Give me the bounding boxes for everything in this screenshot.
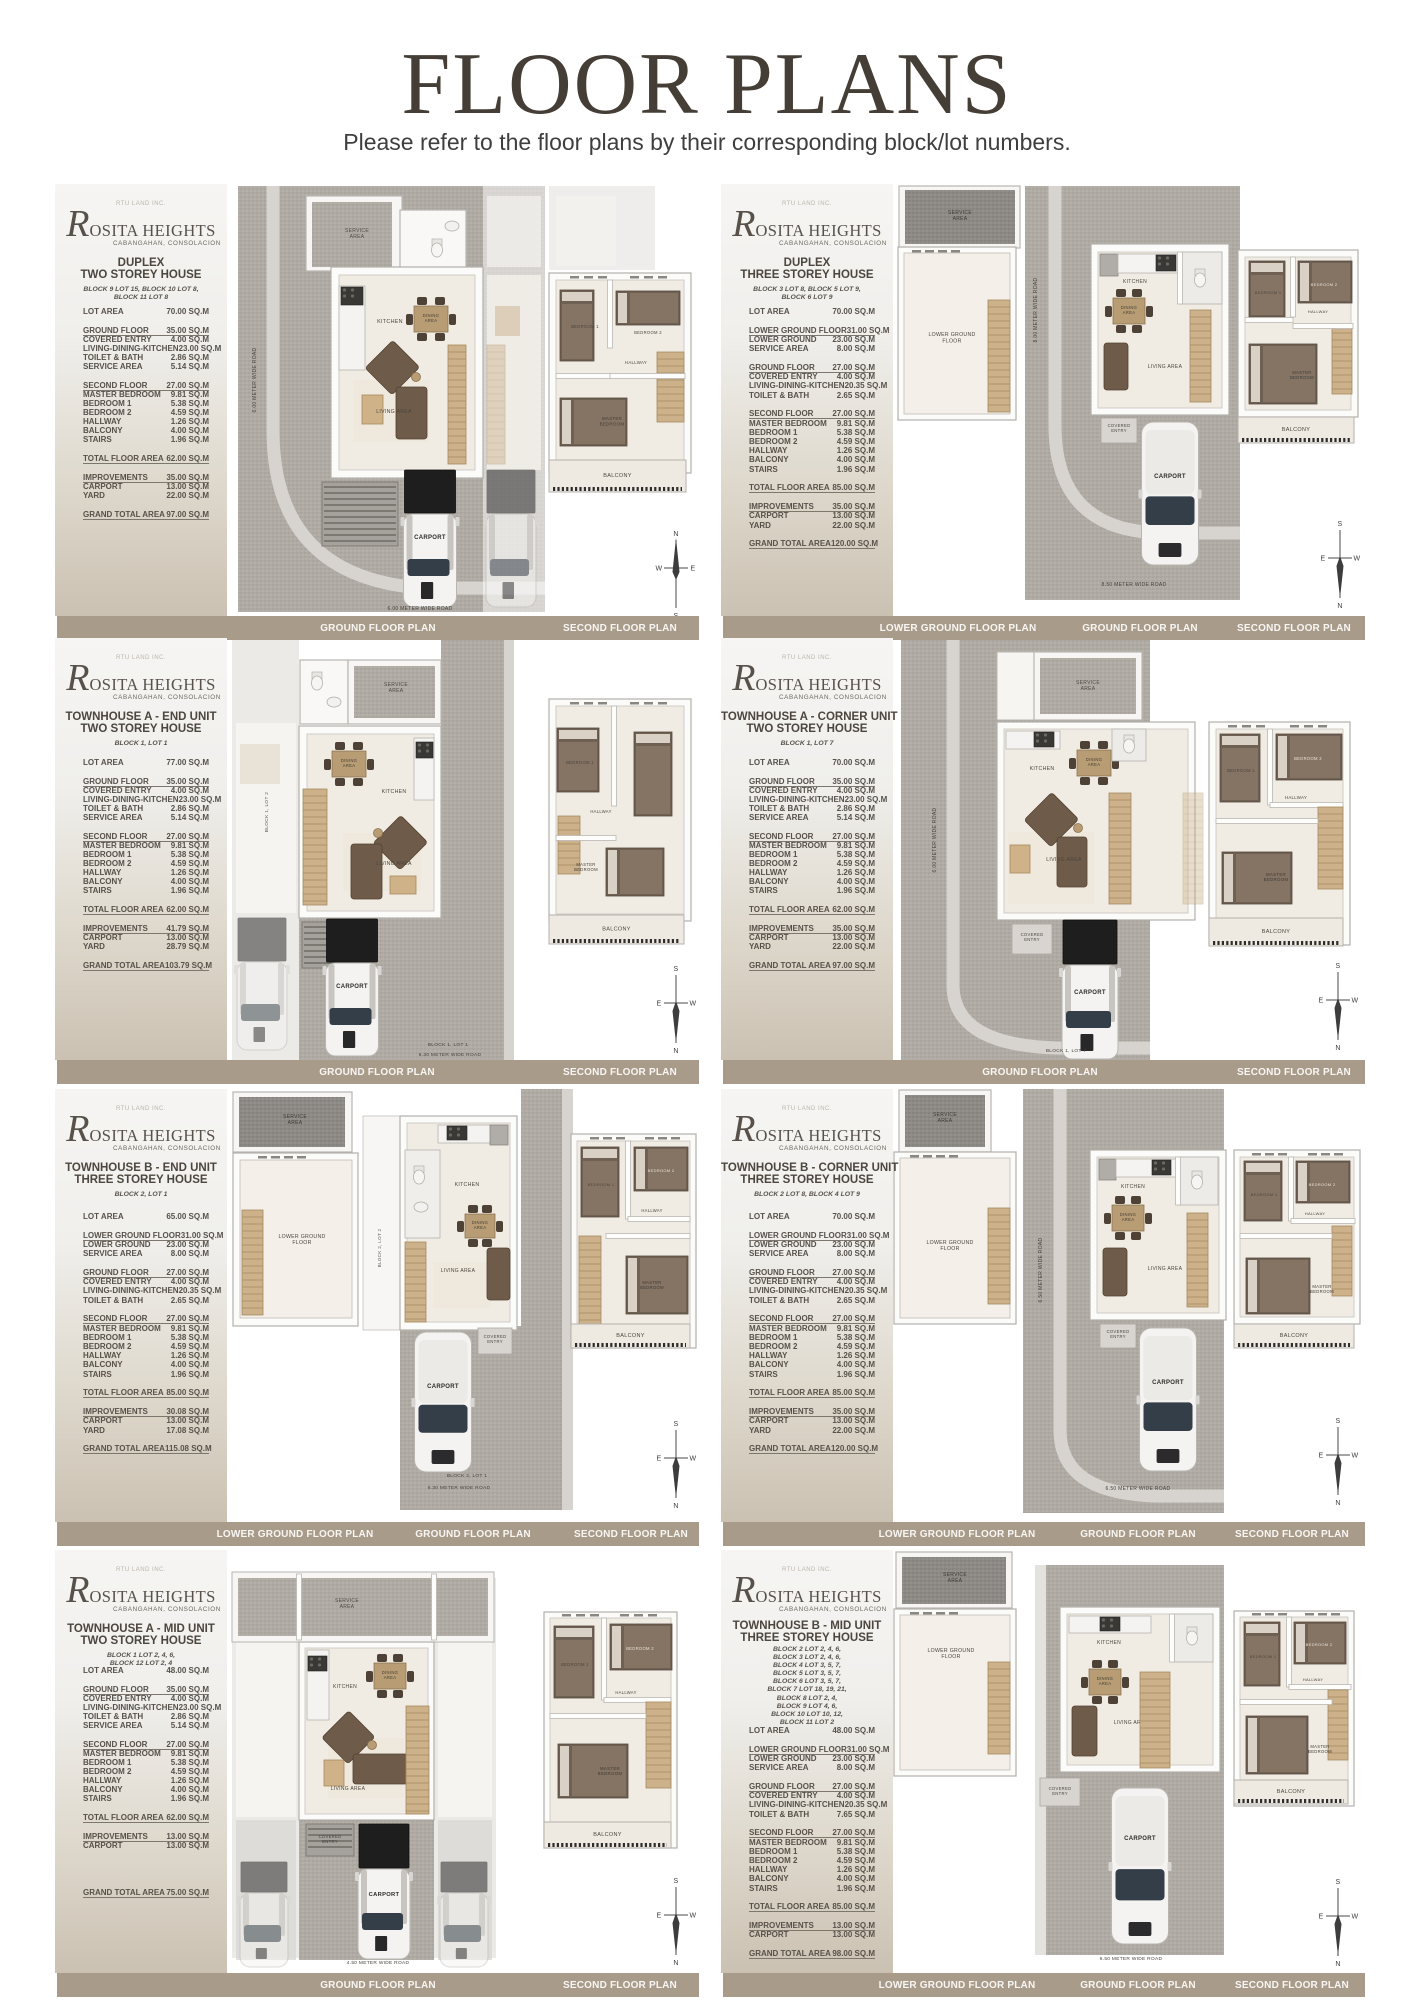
svg-text:HALLWAY: HALLWAY — [1285, 795, 1307, 800]
svg-text:CARPORT: CARPORT — [336, 984, 368, 990]
svg-text:N: N — [673, 1048, 678, 1055]
svg-text:E: E — [657, 1913, 662, 1920]
svg-text:S: S — [674, 1421, 679, 1428]
svg-text:W: W — [1354, 556, 1361, 563]
svg-text:ENTRY: ENTRY — [322, 1839, 338, 1844]
svg-text:W: W — [690, 1913, 697, 1920]
svg-text:CARPORT: CARPORT — [414, 535, 446, 541]
svg-text:HALLWAY: HALLWAY — [641, 1208, 662, 1213]
svg-text:S: S — [1338, 521, 1343, 528]
svg-text:BEDROOM 2: BEDROOM 2 — [1311, 282, 1338, 287]
svg-text:AREA: AREA — [288, 1120, 303, 1126]
svg-text:FLOOR: FLOOR — [942, 339, 961, 345]
svg-text:AREA: AREA — [389, 688, 404, 694]
svg-text:BEDROOM 2: BEDROOM 2 — [626, 1646, 654, 1651]
svg-text:E: E — [657, 1001, 662, 1008]
svg-text:AREA: AREA — [1088, 762, 1101, 767]
svg-text:N: N — [673, 1960, 678, 1967]
svg-text:BEDROOM 1: BEDROOM 1 — [588, 1182, 615, 1187]
svg-text:BALCONY: BALCONY — [1277, 1789, 1305, 1795]
svg-text:LIVING AREA: LIVING AREA — [331, 1786, 366, 1792]
svg-text:KITCHEN: KITCHEN — [1123, 279, 1147, 285]
svg-text:BLOCK 2, LOT 2: BLOCK 2, LOT 2 — [377, 1228, 382, 1267]
svg-text:6.30 METER WIDE ROAD: 6.30 METER WIDE ROAD — [419, 1052, 482, 1058]
svg-text:BLOCK 1, LOT 7: BLOCK 1, LOT 7 — [1046, 1048, 1086, 1054]
svg-text:6.00 METER WIDE ROAD: 6.00 METER WIDE ROAD — [388, 606, 453, 612]
svg-text:LIVING AREA: LIVING AREA — [376, 409, 412, 415]
svg-text:BEDROOM: BEDROOM — [598, 1771, 623, 1776]
svg-text:LIVING AREA: LIVING AREA — [376, 861, 412, 867]
svg-text:BEDROOM 1: BEDROOM 1 — [561, 1662, 589, 1667]
svg-text:E: E — [1319, 1914, 1324, 1921]
svg-text:HALLWAY: HALLWAY — [625, 360, 647, 365]
svg-text:BALCONY: BALCONY — [1262, 929, 1290, 935]
svg-text:AREA: AREA — [384, 1675, 397, 1680]
svg-text:AREA: AREA — [1099, 1681, 1112, 1686]
svg-text:BEDROOM 2: BEDROOM 2 — [1294, 756, 1322, 761]
svg-text:BEDROOM: BEDROOM — [574, 867, 598, 872]
svg-text:ENTRY: ENTRY — [1024, 937, 1040, 942]
svg-text:BEDROOM: BEDROOM — [640, 1285, 664, 1290]
svg-text:HALLWAY: HALLWAY — [590, 809, 611, 814]
svg-text:KITCHEN: KITCHEN — [1097, 1640, 1121, 1646]
svg-text:HALLWAY: HALLWAY — [1305, 1211, 1326, 1216]
svg-text:ENTRY: ENTRY — [1111, 428, 1127, 433]
svg-text:CARPORT: CARPORT — [1154, 474, 1186, 480]
svg-text:W: W — [1352, 998, 1359, 1005]
svg-text:S: S — [1336, 963, 1341, 970]
svg-text:S: S — [1336, 1879, 1341, 1886]
svg-text:LOWER GROUND: LOWER GROUND — [928, 332, 975, 338]
svg-text:CARPORT: CARPORT — [1074, 990, 1106, 996]
svg-text:E: E — [657, 1456, 662, 1463]
svg-text:AREA: AREA — [948, 1578, 963, 1584]
svg-text:N: N — [1335, 1500, 1340, 1507]
svg-text:FLOOR: FLOOR — [941, 1654, 960, 1660]
svg-text:E: E — [1319, 998, 1324, 1005]
svg-text:FLOOR: FLOOR — [940, 1246, 959, 1252]
svg-text:AREA: AREA — [1081, 686, 1096, 692]
svg-text:BLOCK 1, LOT 2: BLOCK 1, LOT 2 — [264, 792, 270, 832]
svg-text:N: N — [1335, 1045, 1340, 1052]
svg-text:W: W — [1352, 1914, 1359, 1921]
svg-text:8.50 METER WIDE ROAD: 8.50 METER WIDE ROAD — [1102, 582, 1167, 588]
svg-text:AREA: AREA — [1122, 1217, 1135, 1222]
svg-text:S: S — [674, 966, 679, 973]
svg-text:BALCONY: BALCONY — [603, 473, 631, 479]
svg-text:LIVING AREA: LIVING AREA — [1148, 364, 1183, 370]
svg-text:BEDROOM 1: BEDROOM 1 — [1227, 768, 1255, 773]
svg-text:AREA: AREA — [474, 1225, 487, 1230]
svg-text:AREA: AREA — [343, 763, 356, 768]
svg-text:BALCONY: BALCONY — [616, 1333, 644, 1339]
svg-text:W: W — [1352, 1453, 1359, 1460]
svg-text:BEDROOM: BEDROOM — [1308, 1749, 1332, 1754]
svg-text:W: W — [656, 566, 663, 573]
svg-text:LIVING AREA: LIVING AREA — [1046, 857, 1082, 863]
svg-text:N: N — [1335, 1961, 1340, 1968]
svg-text:CARPORT: CARPORT — [1152, 1380, 1184, 1386]
svg-text:BEDROOM 1: BEDROOM 1 — [1255, 290, 1282, 295]
svg-text:CARPORT: CARPORT — [369, 1892, 400, 1898]
svg-text:BEDROOM 2: BEDROOM 2 — [1309, 1182, 1336, 1187]
svg-text:BEDROOM 2: BEDROOM 2 — [1306, 1642, 1333, 1647]
svg-text:HALLWAY: HALLWAY — [1308, 309, 1329, 314]
svg-text:CARPORT: CARPORT — [427, 1384, 459, 1390]
svg-text:BEDROOM: BEDROOM — [1310, 1289, 1334, 1294]
svg-text:KITCHEN: KITCHEN — [455, 1182, 480, 1188]
svg-text:AREA: AREA — [350, 234, 365, 240]
svg-text:8.00 METER WIDE ROAD: 8.00 METER WIDE ROAD — [1033, 277, 1039, 342]
svg-text:KITCHEN: KITCHEN — [382, 789, 407, 795]
svg-text:6.00 METER WIDE ROAD: 6.00 METER WIDE ROAD — [252, 347, 258, 412]
svg-text:BLOCK 2, LOT 1: BLOCK 2, LOT 1 — [447, 1473, 487, 1479]
svg-text:BEDROOM 1: BEDROOM 1 — [1250, 1654, 1277, 1659]
svg-text:BEDROOM 1: BEDROOM 1 — [571, 324, 599, 329]
svg-text:HALLWAY: HALLWAY — [615, 1690, 636, 1695]
svg-text:AREA: AREA — [938, 1118, 953, 1124]
svg-text:MASTER: MASTER — [602, 416, 622, 421]
svg-text:AREA: AREA — [953, 216, 968, 222]
svg-text:CARPORT: CARPORT — [1124, 1836, 1156, 1842]
svg-text:N: N — [1337, 603, 1342, 610]
svg-text:BEDROOM: BEDROOM — [1264, 877, 1289, 882]
svg-text:ENTRY: ENTRY — [1052, 1791, 1068, 1796]
svg-text:BEDROOM 1: BEDROOM 1 — [566, 760, 594, 765]
svg-text:6.00 METER WIDE ROAD: 6.00 METER WIDE ROAD — [932, 807, 938, 872]
svg-text:W: W — [690, 1456, 697, 1463]
svg-text:BEDROOM 2: BEDROOM 2 — [648, 1168, 675, 1173]
svg-text:6.50 METER WIDE ROAD: 6.50 METER WIDE ROAD — [1038, 1237, 1044, 1302]
svg-text:E: E — [1321, 556, 1326, 563]
svg-text:W: W — [690, 1001, 697, 1008]
svg-text:KITCHEN: KITCHEN — [377, 319, 403, 325]
svg-text:BALCONY: BALCONY — [593, 1832, 621, 1838]
svg-text:4.50 METER WIDE ROAD: 4.50 METER WIDE ROAD — [347, 1960, 410, 1966]
svg-text:BEDROOM 2: BEDROOM 2 — [634, 330, 662, 335]
svg-text:AREA: AREA — [425, 318, 438, 323]
svg-text:6.30 METER WIDE ROAD: 6.30 METER WIDE ROAD — [428, 1485, 491, 1491]
svg-text:LIVING AREA: LIVING AREA — [1148, 1266, 1183, 1272]
svg-text:KITCHEN: KITCHEN — [1121, 1184, 1145, 1190]
svg-text:ENTRY: ENTRY — [1110, 1334, 1126, 1339]
svg-text:ENTRY: ENTRY — [487, 1339, 503, 1344]
svg-text:BALCONY: BALCONY — [1282, 427, 1310, 433]
svg-text:E: E — [691, 566, 696, 573]
svg-text:S: S — [674, 1878, 679, 1885]
svg-text:BEDROOM: BEDROOM — [1290, 375, 1314, 380]
svg-text:BALCONY: BALCONY — [1280, 1333, 1308, 1339]
svg-text:6.50 METER WIDE ROAD: 6.50 METER WIDE ROAD — [1100, 1956, 1163, 1962]
svg-text:AREA: AREA — [1123, 310, 1136, 315]
svg-text:KITCHEN: KITCHEN — [333, 1684, 357, 1690]
svg-text:HALLWAY: HALLWAY — [1303, 1677, 1324, 1682]
svg-text:BALCONY: BALCONY — [602, 927, 630, 933]
svg-text:BEDROOM: BEDROOM — [600, 422, 625, 427]
svg-text:6.50 METER WIDE ROAD: 6.50 METER WIDE ROAD — [1106, 1486, 1171, 1492]
svg-text:N: N — [673, 1503, 678, 1510]
svg-text:FLOOR: FLOOR — [292, 1240, 311, 1246]
svg-text:N: N — [673, 531, 678, 538]
svg-text:BEDROOM 1: BEDROOM 1 — [1251, 1192, 1278, 1197]
svg-text:E: E — [1319, 1453, 1324, 1460]
svg-text:LIVING AREA: LIVING AREA — [441, 1268, 476, 1274]
svg-text:KITCHEN: KITCHEN — [1030, 766, 1055, 772]
svg-text:AREA: AREA — [340, 1604, 355, 1610]
svg-text:BLOCK 1, LOT 1: BLOCK 1, LOT 1 — [428, 1042, 468, 1048]
svg-text:S: S — [1336, 1418, 1341, 1425]
